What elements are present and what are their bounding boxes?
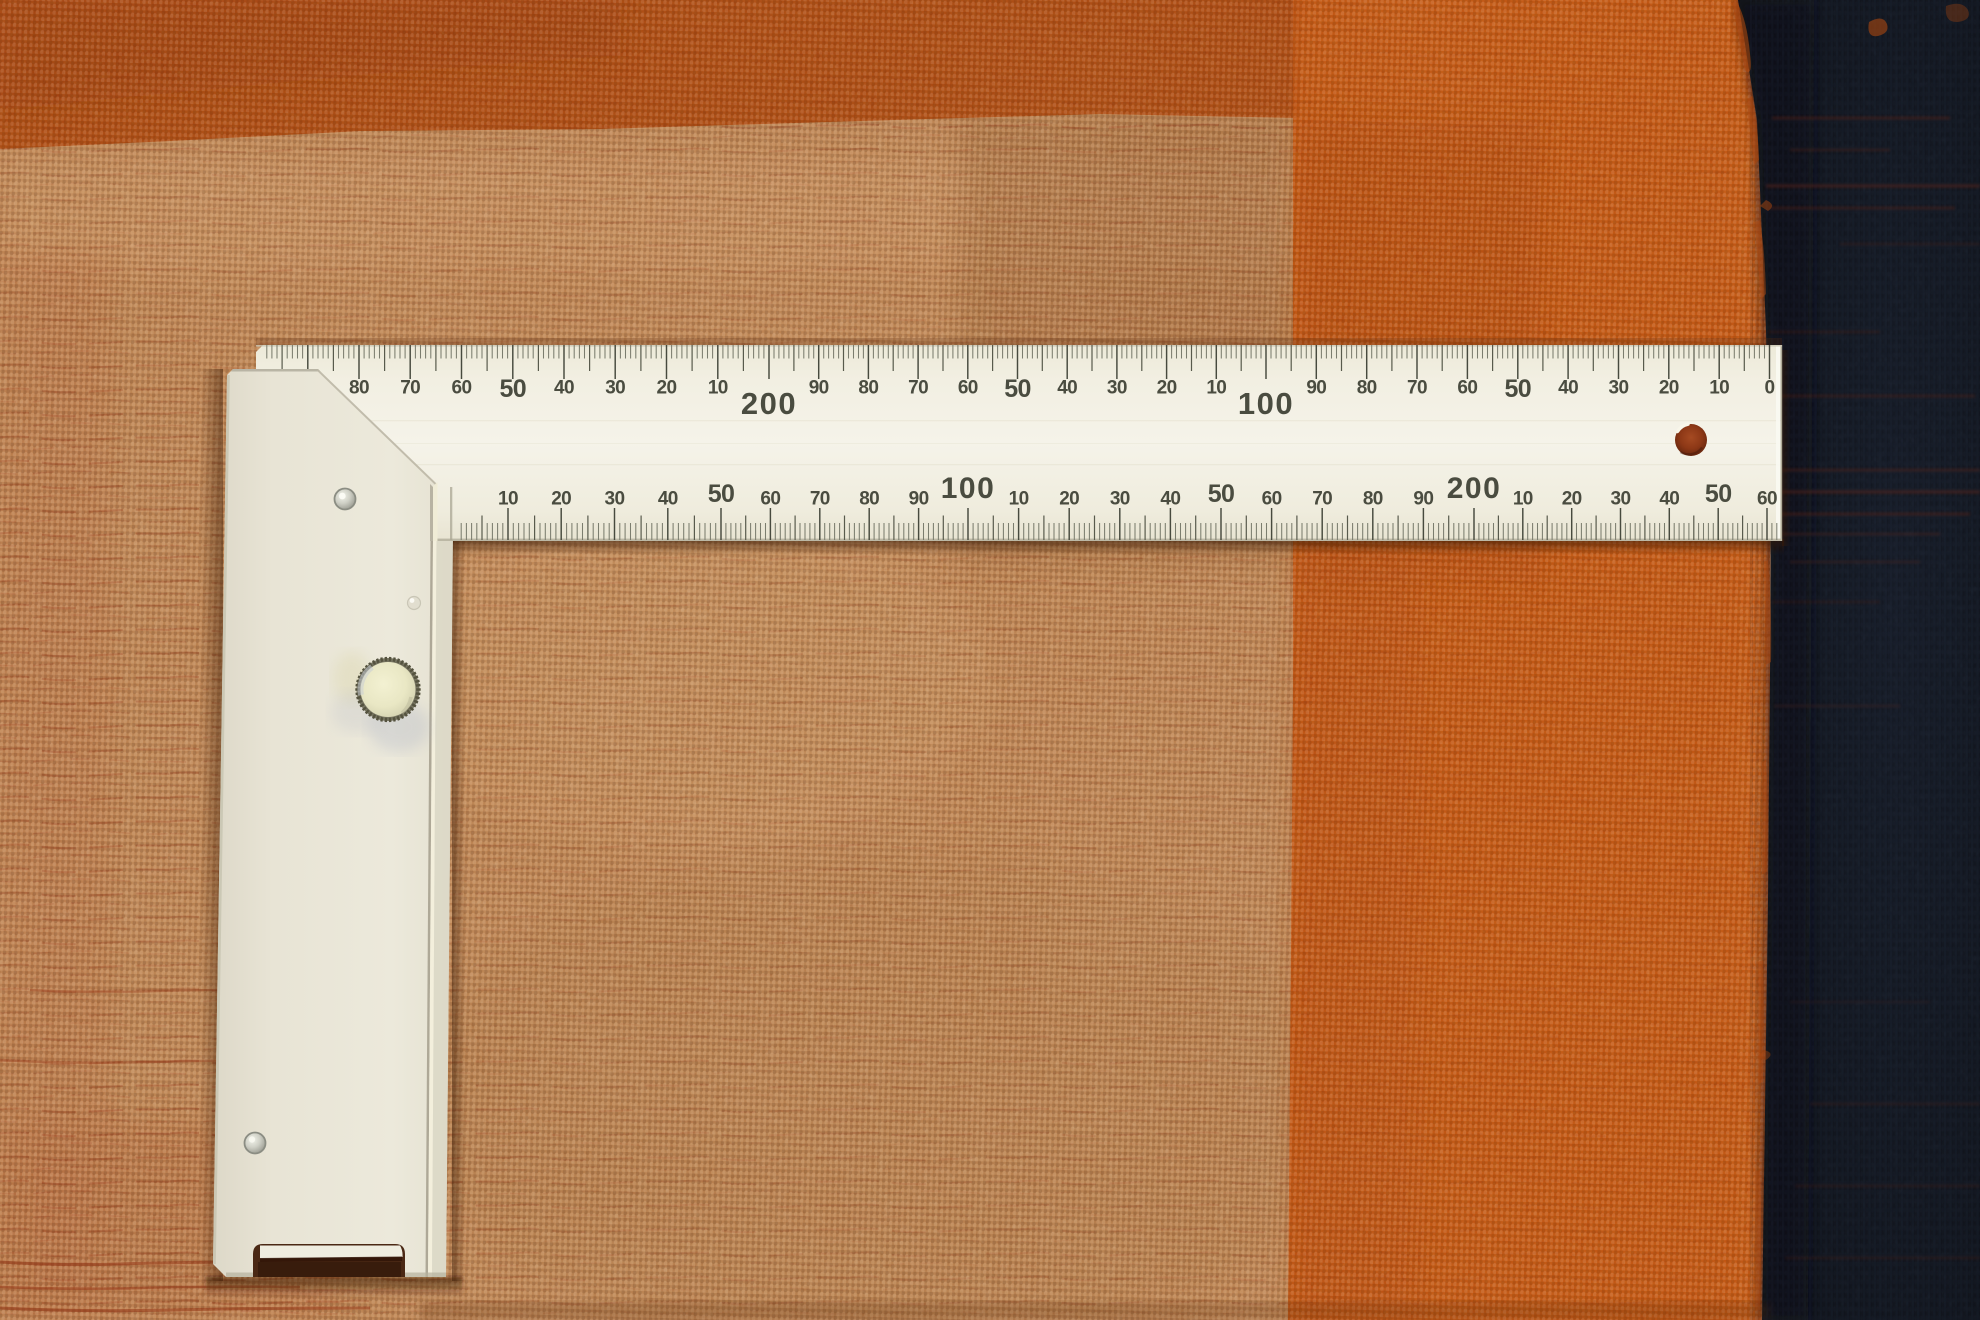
svg-text:90: 90 bbox=[1306, 378, 1326, 399]
svg-text:60: 60 bbox=[958, 378, 978, 399]
svg-text:80: 80 bbox=[859, 489, 879, 510]
svg-text:30: 30 bbox=[1611, 489, 1631, 510]
svg-text:60: 60 bbox=[452, 378, 472, 399]
svg-text:40: 40 bbox=[554, 378, 574, 399]
svg-text:10: 10 bbox=[498, 489, 518, 510]
svg-text:50: 50 bbox=[1504, 375, 1531, 403]
svg-text:70: 70 bbox=[908, 378, 928, 399]
svg-text:20: 20 bbox=[1157, 378, 1177, 399]
svg-text:90: 90 bbox=[909, 489, 929, 510]
svg-text:50: 50 bbox=[708, 480, 735, 508]
svg-text:30: 30 bbox=[1609, 378, 1629, 399]
svg-text:70: 70 bbox=[400, 378, 420, 399]
svg-text:0: 0 bbox=[1765, 378, 1775, 399]
svg-text:60: 60 bbox=[1262, 489, 1282, 510]
svg-text:20: 20 bbox=[551, 489, 571, 510]
svg-text:10: 10 bbox=[1009, 489, 1029, 510]
svg-text:90: 90 bbox=[1413, 489, 1433, 510]
svg-text:20: 20 bbox=[1562, 489, 1582, 510]
svg-text:30: 30 bbox=[1107, 378, 1127, 399]
svg-text:40: 40 bbox=[1057, 378, 1077, 399]
svg-text:40: 40 bbox=[1659, 489, 1679, 510]
svg-text:10: 10 bbox=[1206, 378, 1226, 399]
svg-text:10: 10 bbox=[1513, 489, 1533, 510]
svg-text:30: 30 bbox=[1110, 489, 1130, 510]
svg-text:50: 50 bbox=[1705, 480, 1732, 508]
svg-text:20: 20 bbox=[657, 378, 677, 399]
svg-text:200: 200 bbox=[741, 386, 797, 421]
svg-text:50: 50 bbox=[499, 375, 526, 403]
svg-text:50: 50 bbox=[1208, 480, 1235, 508]
svg-text:20: 20 bbox=[1659, 378, 1679, 399]
svg-text:10: 10 bbox=[708, 378, 728, 399]
svg-text:40: 40 bbox=[658, 489, 678, 510]
svg-text:80: 80 bbox=[1357, 378, 1377, 399]
svg-text:70: 70 bbox=[810, 489, 830, 510]
svg-text:10: 10 bbox=[1709, 378, 1729, 399]
svg-text:200: 200 bbox=[1447, 472, 1502, 505]
svg-text:50: 50 bbox=[1004, 375, 1031, 403]
svg-text:30: 30 bbox=[605, 489, 625, 510]
svg-text:40: 40 bbox=[1160, 489, 1180, 510]
svg-text:20: 20 bbox=[1059, 489, 1079, 510]
svg-text:70: 70 bbox=[1407, 378, 1427, 399]
svg-text:100: 100 bbox=[941, 472, 996, 505]
svg-text:40: 40 bbox=[1558, 378, 1578, 399]
svg-text:80: 80 bbox=[349, 378, 369, 399]
svg-text:100: 100 bbox=[1238, 386, 1294, 421]
svg-text:60: 60 bbox=[1757, 489, 1777, 510]
svg-text:80: 80 bbox=[1363, 489, 1383, 510]
svg-text:60: 60 bbox=[1457, 378, 1477, 399]
svg-text:80: 80 bbox=[858, 378, 878, 399]
svg-text:90: 90 bbox=[809, 378, 829, 399]
svg-text:70: 70 bbox=[1312, 489, 1332, 510]
svg-text:60: 60 bbox=[760, 489, 780, 510]
svg-text:30: 30 bbox=[605, 378, 625, 399]
